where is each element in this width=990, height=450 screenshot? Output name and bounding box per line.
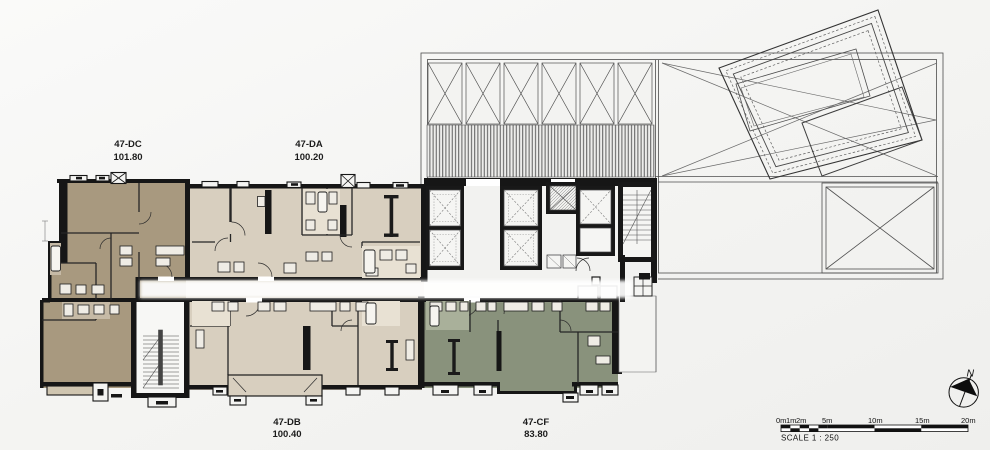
svg-text:10m: 10m	[868, 416, 883, 425]
svg-text:47-CF: 47-CF	[523, 417, 550, 428]
svg-text:47-DC: 47-DC	[114, 139, 142, 150]
svg-text:47-DB: 47-DB	[273, 417, 301, 428]
svg-text:47-DA: 47-DA	[295, 139, 323, 150]
svg-text:83.80: 83.80	[524, 429, 548, 440]
svg-text:101.80: 101.80	[113, 152, 142, 163]
svg-text:SCALE 1 : 250: SCALE 1 : 250	[781, 434, 839, 443]
svg-text:N: N	[967, 368, 975, 380]
svg-text:5m: 5m	[822, 416, 832, 425]
svg-text:20m: 20m	[961, 416, 976, 425]
svg-text:2m: 2m	[796, 416, 806, 425]
svg-text:1m: 1m	[786, 416, 796, 425]
svg-text:100.20: 100.20	[294, 152, 323, 163]
svg-text:15m: 15m	[915, 416, 930, 425]
svg-text:0m: 0m	[776, 416, 786, 425]
svg-text:100.40: 100.40	[272, 429, 301, 440]
